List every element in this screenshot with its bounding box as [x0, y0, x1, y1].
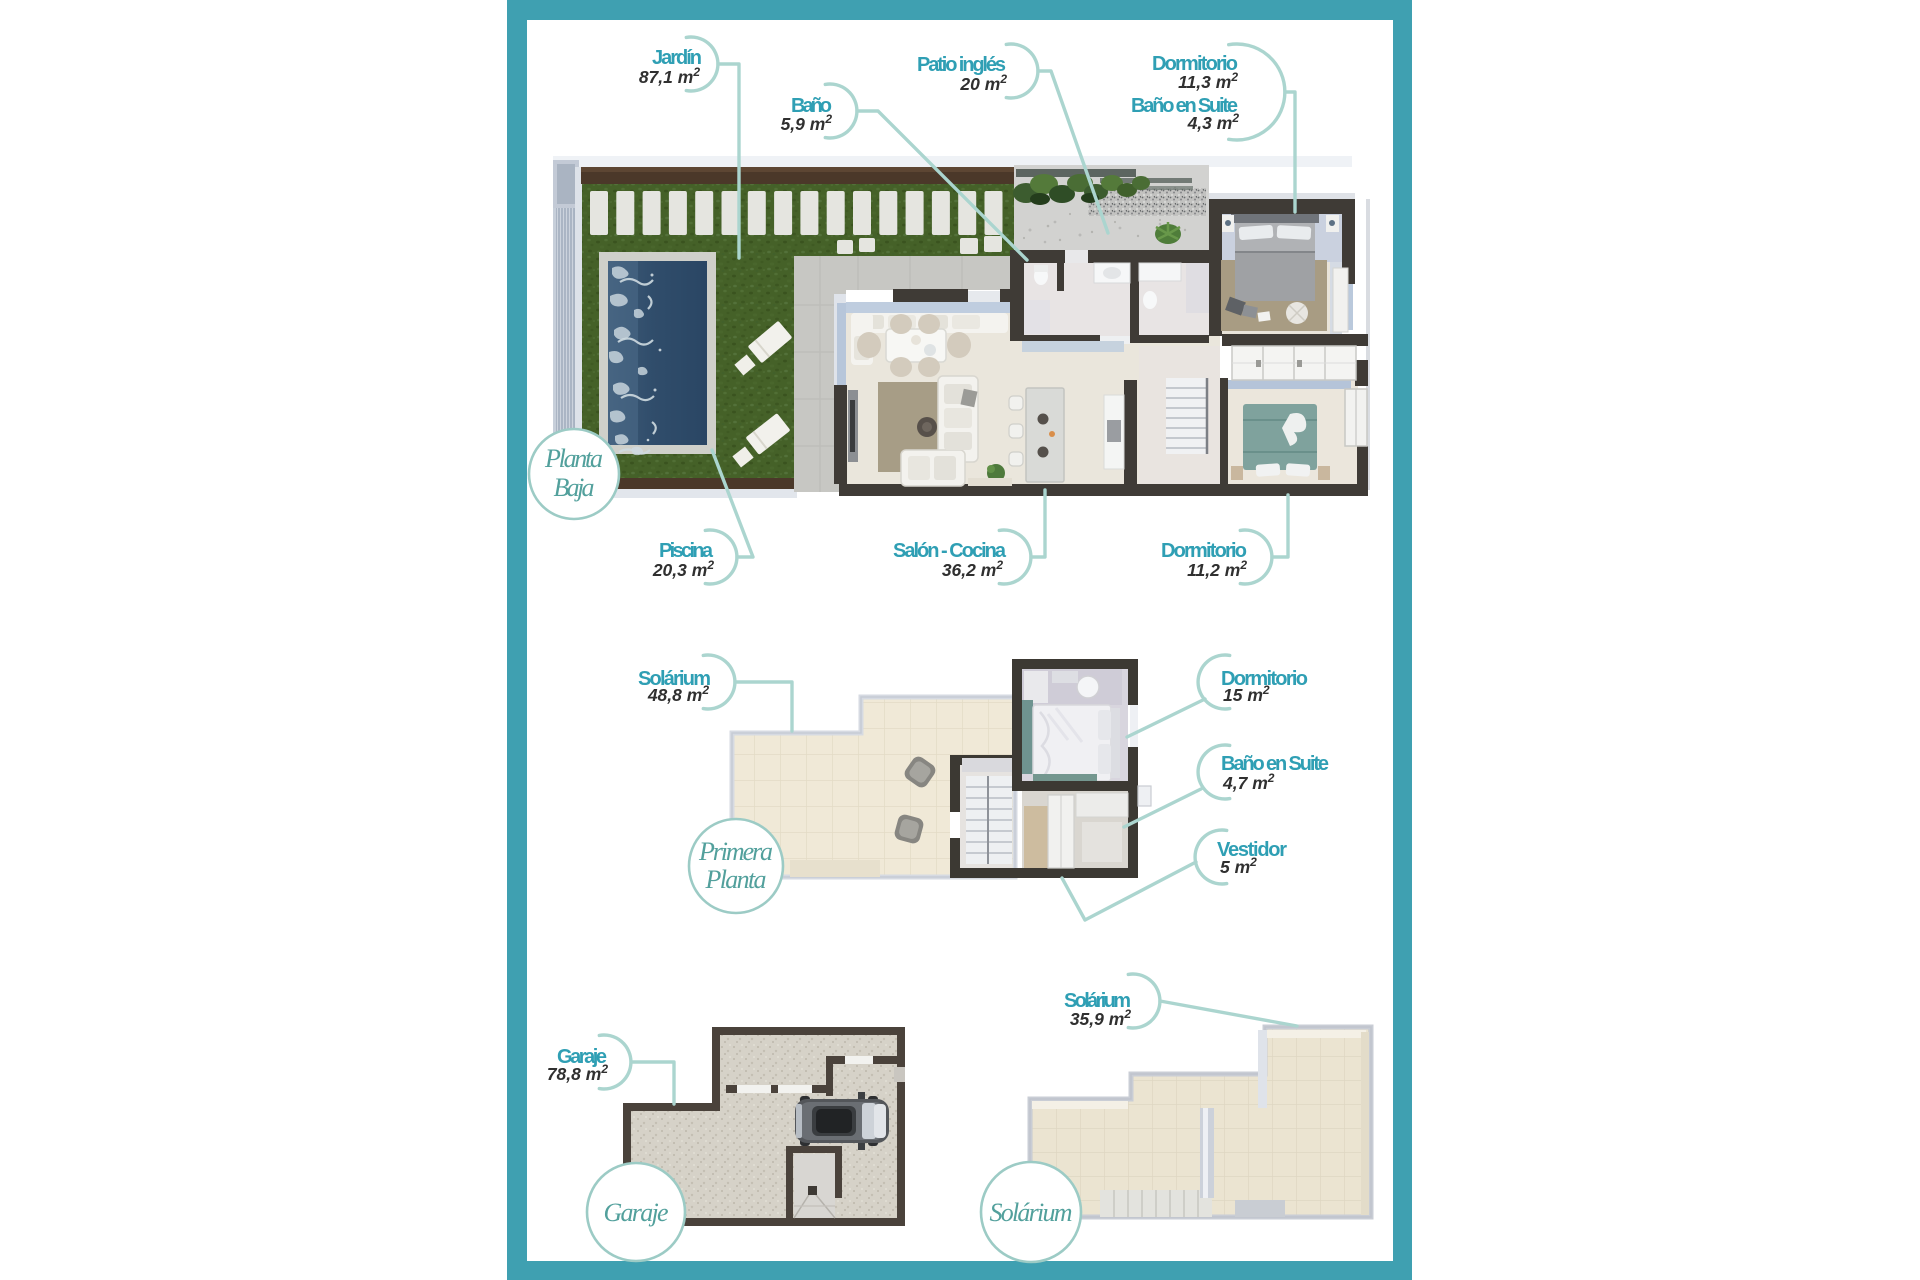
svg-text:Piscina: Piscina [659, 540, 714, 562]
svg-text:78,8 m2: 78,8 m2 [547, 1062, 608, 1084]
svg-text:15 m2: 15 m2 [1223, 683, 1270, 705]
svg-text:Baja: Baja [554, 473, 595, 502]
svg-text:11,3 m2: 11,3 m2 [1178, 70, 1238, 92]
svg-text:5,9 m2: 5,9 m2 [781, 112, 833, 134]
svg-text:Planta: Planta [705, 865, 767, 894]
svg-text:Solárium: Solárium [990, 1198, 1073, 1227]
svg-text:Patio inglés: Patio inglés [917, 54, 1006, 76]
svg-text:Primera: Primera [698, 837, 773, 866]
svg-text:48,8 m2: 48,8 m2 [647, 683, 709, 705]
svg-text:Garaje: Garaje [604, 1198, 669, 1227]
svg-text:Salón - Cocina: Salón - Cocina [893, 540, 1007, 562]
svg-text:4,7 m2: 4,7 m2 [1222, 771, 1275, 793]
svg-text:20,3 m2: 20,3 m2 [652, 558, 714, 580]
svg-text:11,2 m2: 11,2 m2 [1187, 558, 1247, 580]
svg-text:Planta: Planta [544, 444, 603, 473]
svg-text:4,3 m2: 4,3 m2 [1187, 111, 1240, 133]
svg-text:87,1 m2: 87,1 m2 [639, 65, 700, 87]
svg-text:Baño en Suite: Baño en Suite [1221, 753, 1329, 775]
svg-text:Dormitorio: Dormitorio [1161, 540, 1247, 562]
svg-text:36,2 m2: 36,2 m2 [942, 558, 1003, 580]
svg-text:20 m2: 20 m2 [959, 72, 1007, 94]
svg-text:35,9 m2: 35,9 m2 [1070, 1007, 1131, 1029]
